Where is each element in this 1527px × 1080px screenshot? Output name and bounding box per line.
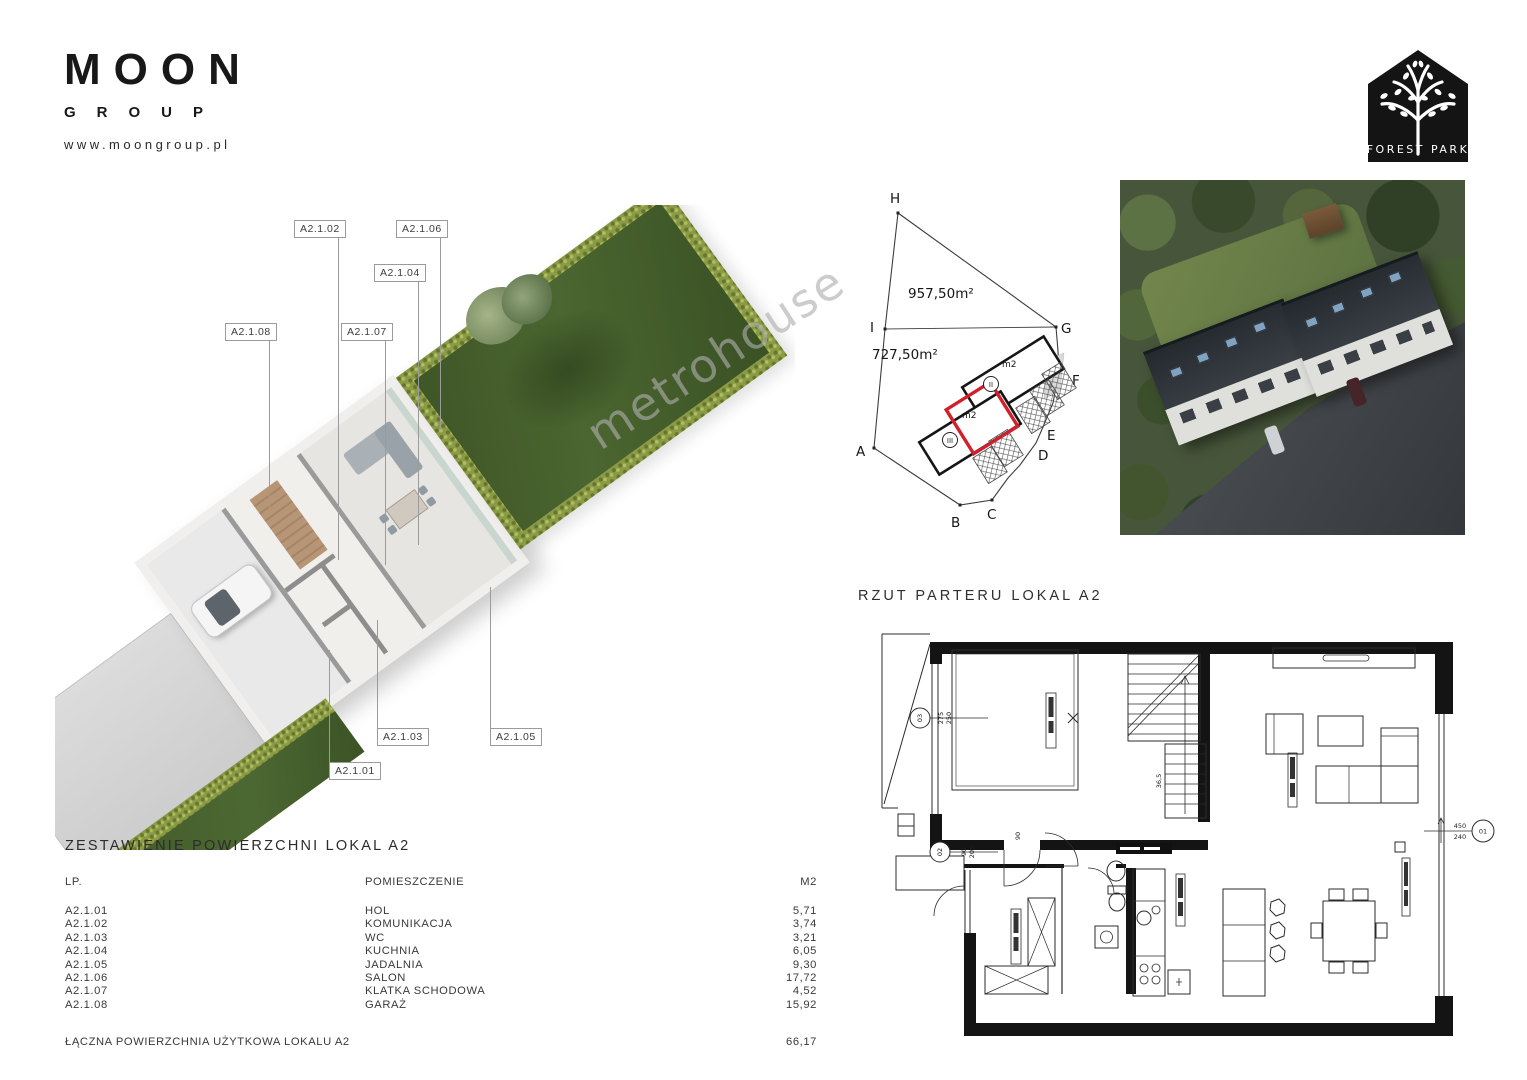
corner-c: C <box>987 507 996 523</box>
corner-e: E <box>1047 428 1056 444</box>
hob <box>1140 964 1148 972</box>
room-callout: A2.1.01 <box>329 762 381 780</box>
corner-g: G <box>1061 321 1071 337</box>
room-callout: A2.1.03 <box>377 728 429 746</box>
marker-garage-door: 03 <box>916 714 924 722</box>
room-label-bars <box>1011 693 1410 964</box>
svg-text:450: 450 <box>1454 822 1466 830</box>
stairs-3d <box>250 480 328 570</box>
website-url: www.moongroup.pl <box>64 137 253 152</box>
dining-table <box>1323 901 1375 961</box>
svg-text:90: 90 <box>960 848 968 856</box>
room-callout: A2.1.02 <box>294 220 346 238</box>
kitchen-counter <box>1133 869 1165 996</box>
dining-chair <box>1353 889 1368 900</box>
corner-f: F <box>1072 373 1080 389</box>
stairs-upper-flight <box>1128 654 1200 741</box>
room-callout: A2.1.05 <box>490 728 542 746</box>
corner-i: I <box>870 320 874 336</box>
garage-parking-space <box>952 650 1078 790</box>
kitchen-island <box>1223 889 1265 996</box>
room-callout: A2.1.06 <box>396 220 448 238</box>
bar-stool <box>1270 945 1285 962</box>
room-callout: A2.1.04 <box>374 264 426 282</box>
svg-text:240: 240 <box>1454 833 1466 841</box>
dining-chair <box>1329 889 1344 900</box>
table-row: A2.1.01HOL5,71 <box>65 905 817 918</box>
armchair <box>1266 714 1303 754</box>
stairs-dim: 36,5 <box>1155 774 1163 788</box>
corner-b: B <box>951 515 960 531</box>
table-row: A2.1.07KLATKA SCHODOWA4,52 <box>65 985 817 998</box>
parcel-area-lower: 727,50m² <box>872 347 938 363</box>
moon-group-logo: MOON GROUP www.moongroup.pl <box>64 48 253 152</box>
table-title: ZESTAWIENIE POWIERZCHNI LOKAL A2 <box>65 838 817 854</box>
bar-stool <box>1270 922 1285 939</box>
page: { "brand": {"name": "MOON", "sub": "GROU… <box>0 0 1527 1080</box>
parcel-area-upper: 957,50m² <box>908 286 974 302</box>
callout-line <box>269 340 270 515</box>
callout-line <box>418 281 419 545</box>
corner-h: H <box>890 191 900 207</box>
entry-porch <box>896 856 964 890</box>
coffee-table <box>1318 716 1363 746</box>
sofa-seat <box>1316 766 1418 803</box>
room-callout: A2.1.08 <box>225 323 277 341</box>
unit-marker: m2 <box>1002 360 1017 370</box>
col-m2: M2 <box>745 876 817 888</box>
moon-logo-text: MOON <box>64 48 253 92</box>
table-row: A2.1.03WC3,21 <box>65 932 817 945</box>
table-total-row: ŁĄCZNA POWIERZCHNIA UŻYTKOWA LOKALU A2 6… <box>65 1036 817 1048</box>
total-value: 66,17 <box>745 1036 817 1048</box>
dining-chair <box>1311 923 1322 938</box>
aerial-photo <box>1120 180 1465 535</box>
area-summary-table: ZESTAWIENIE POWIERZCHNI LOKAL A2 LP. POM… <box>65 838 817 1048</box>
isometric-floor-render <box>55 205 795 850</box>
corner-a: A <box>856 444 866 460</box>
washing-machine <box>1095 926 1118 948</box>
forest-park-label: FOREST PARK <box>1368 143 1468 156</box>
table-row: A2.1.02KOMUNIKACJA3,74 <box>65 918 817 931</box>
callout-line <box>329 650 330 762</box>
table-row: A2.1.05JADALNIA9,30 <box>65 959 817 972</box>
moon-logo-subtext: GROUP <box>64 104 253 121</box>
svg-text:205: 205 <box>968 846 976 858</box>
dining-chair <box>1376 923 1387 938</box>
callout-line <box>440 237 441 430</box>
unit-marker: m2 <box>962 411 977 421</box>
car-3d <box>188 561 276 641</box>
site-plan: II III m2 m2 957,50m² 727,50m² H I A B C… <box>850 175 1100 545</box>
stairs-direction-arrow <box>1181 676 1189 814</box>
total-label: ŁĄCZNA POWIERZCHNIA UŻYTKOWA LOKALU A2 <box>65 1036 745 1048</box>
building-upper-number: II <box>989 381 993 389</box>
door-width-dim: 90 <box>1014 832 1022 840</box>
forest-park-logo: FOREST PARK <box>1368 50 1468 168</box>
floor-drain-icon <box>1068 713 1078 723</box>
callout-line <box>385 340 386 565</box>
svg-text:275: 275 <box>937 712 945 724</box>
dining-chair <box>1329 962 1344 973</box>
building-lower-number: III <box>947 437 953 445</box>
table-row: A2.1.06SALON17,72 <box>65 972 817 985</box>
callout-line <box>377 620 378 728</box>
col-room: POMIESZCZENIE <box>365 876 745 888</box>
forest-park-tree-icon: FOREST PARK <box>1368 50 1468 168</box>
corner-d: D <box>1038 448 1048 464</box>
dining-chair <box>1353 962 1368 973</box>
table-row: A2.1.04KUCHNIA6,05 <box>65 945 817 958</box>
table-header: LP. POMIESZCZENIE M2 <box>65 876 817 888</box>
kitchen-sink <box>1137 911 1151 925</box>
marker-entry-door: 02 <box>936 848 944 856</box>
room-callout: A2.1.07 <box>341 323 393 341</box>
door-arc-wc <box>1088 868 1114 894</box>
bar-stool <box>1270 899 1285 916</box>
callout-line <box>338 237 339 560</box>
table-row: A2.1.08GARAŻ15,92 <box>65 999 817 1012</box>
col-lp: LP. <box>65 876 365 888</box>
walls <box>930 642 1453 1036</box>
floor-plan-title: RZUT PARTERU LOKAL A2 <box>858 588 1103 604</box>
marker-window: 01 <box>1479 828 1487 836</box>
callout-line <box>490 587 491 728</box>
svg-text:250: 250 <box>945 712 953 724</box>
iso-strip <box>55 205 795 850</box>
floor-plan-drawing: 03 275 250 02 90 205 01 450 240 90 36,5 <box>868 618 1508 1050</box>
